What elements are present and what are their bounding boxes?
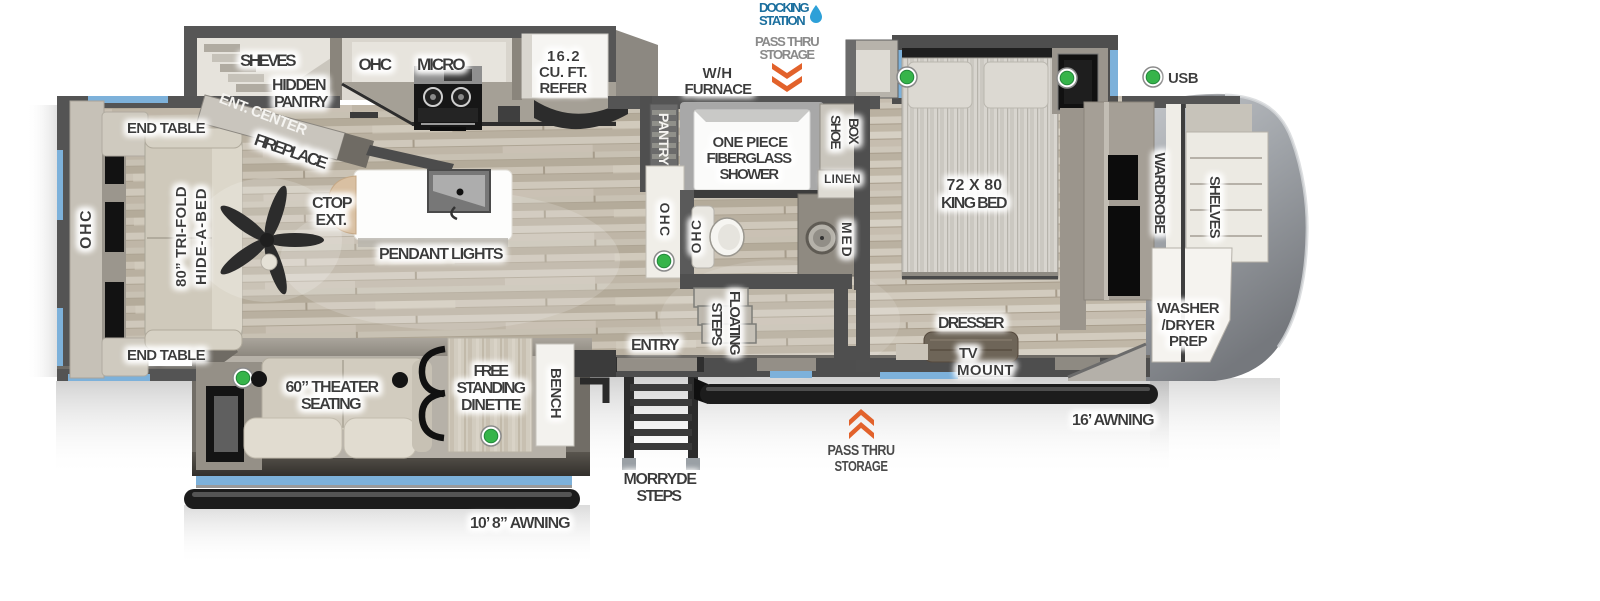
svg-text:60” THEATER: 60” THEATER: [286, 379, 380, 396]
svg-text:/DRYER: /DRYER: [1162, 317, 1216, 334]
svg-text:FLOATING: FLOATING: [726, 291, 743, 355]
svg-text:72 X 80: 72 X 80: [947, 177, 1003, 194]
svg-text:STORAGE: STORAGE: [835, 458, 888, 475]
svg-text:STEPS: STEPS: [708, 303, 725, 347]
svg-text:SEATING: SEATING: [301, 396, 361, 413]
svg-text:STATION: STATION: [759, 13, 805, 28]
svg-text:STORAGE: STORAGE: [760, 47, 816, 62]
svg-text:OHC: OHC: [359, 55, 392, 74]
svg-text:FREE: FREE: [474, 363, 510, 380]
svg-text:PANTRY: PANTRY: [274, 94, 329, 111]
svg-text:SHOWER: SHOWER: [720, 166, 780, 183]
svg-text:STANDING: STANDING: [457, 380, 526, 397]
svg-text:MOUNT: MOUNT: [957, 362, 1013, 379]
svg-text:TV: TV: [959, 345, 978, 362]
svg-text:HIDE-A-BED: HIDE-A-BED: [193, 188, 210, 285]
svg-text:PREP: PREP: [1169, 333, 1208, 350]
svg-text:CU. FT.: CU. FT.: [539, 64, 587, 81]
svg-text:FIBERGLASS: FIBERGLASS: [707, 150, 793, 167]
svg-text:KING BED: KING BED: [941, 195, 1007, 212]
svg-text:OHC: OHC: [657, 203, 673, 236]
svg-text:OHC: OHC: [78, 210, 95, 249]
svg-text:WARDROBE: WARDROBE: [1151, 153, 1168, 235]
svg-text:WASHER: WASHER: [1157, 300, 1220, 317]
svg-text:16’ AWNING: 16’ AWNING: [1072, 412, 1154, 429]
svg-text:REFER: REFER: [540, 80, 588, 97]
svg-text:PANTRY: PANTRY: [656, 113, 672, 166]
svg-text:END TABLE: END TABLE: [127, 120, 206, 137]
svg-text:SHOE: SHOE: [828, 115, 844, 149]
svg-text:MED: MED: [839, 222, 855, 256]
svg-text:MICRO: MICRO: [417, 55, 465, 74]
svg-text:PENDANT LIGHTS: PENDANT LIGHTS: [379, 246, 504, 263]
svg-text:W/H: W/H: [703, 65, 732, 82]
svg-text:PASS THRU: PASS THRU: [828, 442, 895, 459]
svg-text:ONE PIECE: ONE PIECE: [713, 134, 789, 151]
svg-text:10’ 8” AWNING: 10’ 8” AWNING: [470, 515, 570, 532]
svg-text:16.2: 16.2: [547, 48, 579, 65]
svg-text:DRESSER: DRESSER: [938, 315, 1005, 332]
svg-text:CTOP: CTOP: [312, 195, 353, 212]
svg-text:END TABLE: END TABLE: [127, 347, 206, 364]
svg-text:DINETTE: DINETTE: [461, 397, 522, 414]
svg-text:FURNACE: FURNACE: [685, 81, 753, 98]
svg-text:STEPS: STEPS: [637, 488, 683, 505]
svg-text:EXT.: EXT.: [316, 212, 347, 229]
svg-text:LINEN: LINEN: [824, 172, 860, 186]
svg-text:ENTRY: ENTRY: [631, 337, 680, 354]
svg-text:BOX: BOX: [846, 118, 862, 145]
svg-text:SHELVES: SHELVES: [1206, 176, 1223, 239]
svg-text:MORRYDE: MORRYDE: [624, 471, 698, 488]
svg-text:OHC: OHC: [688, 220, 704, 253]
svg-text:80” TRI-FOLD: 80” TRI-FOLD: [173, 186, 190, 287]
svg-text:HIDDEN: HIDDEN: [272, 77, 326, 94]
svg-text:USB: USB: [1168, 70, 1199, 87]
svg-text:SHEVES: SHEVES: [240, 51, 296, 70]
svg-text:BENCH: BENCH: [547, 368, 564, 418]
